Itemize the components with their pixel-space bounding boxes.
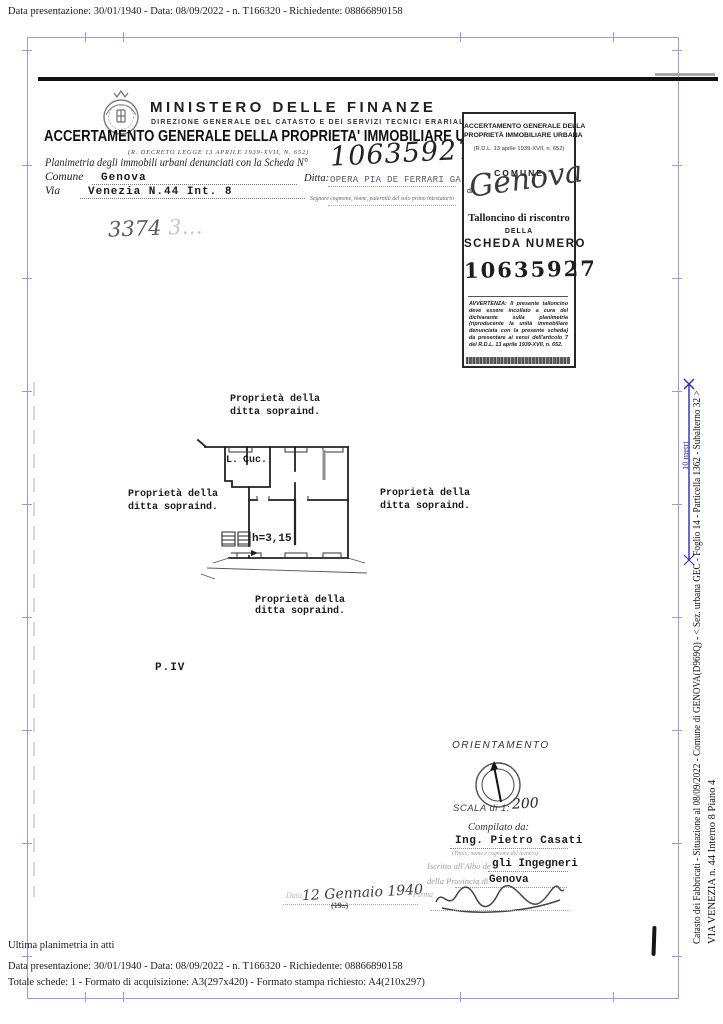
top-meta-line: Data presentazione: 30/01/1940 - Data: 0… <box>8 6 403 17</box>
frame-tick <box>672 391 682 392</box>
margin-address-line: VIA VENEZIA n. 44 Interno 8 Piano 4 <box>707 780 718 944</box>
via-value: Venezia N.44 Int. 8 <box>88 186 232 198</box>
compilato-name: Ing. Pietro Casati <box>455 835 583 847</box>
firma-underline <box>430 910 570 911</box>
decree-line: (R. DECRETO LEGGE 13 APRILE 1939-XVII, N… <box>128 149 309 156</box>
frame-tick <box>460 992 461 1002</box>
talloncino-title-2: PROPRIETÀ IMMOBILIARE URBANA <box>464 132 574 139</box>
frame-tick <box>22 50 32 51</box>
albo-underline <box>488 871 568 872</box>
frame-tick <box>22 504 32 505</box>
frame-tick <box>22 843 32 844</box>
frame-tick <box>22 730 32 731</box>
handwritten-reference-faint: 3… <box>168 214 203 239</box>
scan-top-rule-ghost <box>655 73 715 76</box>
date-label: Data <box>286 891 302 900</box>
frame-tick <box>672 956 682 957</box>
property-label-bottom: Proprietà della ditta sopraind. <box>255 596 345 617</box>
property-label-left-line1: Proprietà della <box>128 489 218 502</box>
property-label-top-line1: Proprietà della <box>230 393 320 406</box>
talloncino-scheda-numero: SCHEDA NUMERO <box>464 238 574 250</box>
ruler-label: 10 metri <box>680 441 690 470</box>
talloncino-title-1: ACCERTAMENTO GENERALE DELLA <box>464 123 574 130</box>
property-label-right: Proprietà della ditta sopraind. <box>380 488 470 513</box>
talloncino-riscontro: Talloncino di riscontro <box>464 213 574 224</box>
frame-tick <box>672 504 682 505</box>
frame-tick <box>22 617 32 618</box>
handwritten-reference-dark: 3374 <box>108 216 162 242</box>
frame-tick <box>672 50 682 51</box>
frame-tick <box>613 32 614 42</box>
frame-tick <box>123 992 124 1002</box>
compilato-name-note: (Titolo, nome e cognome del tecnico) <box>452 851 538 857</box>
signature-scribble <box>432 880 570 920</box>
talloncino-avvertenza: AVVERTENZA: Il presente talloncino deve … <box>469 301 568 348</box>
property-label-right-line2: ditta sopraind. <box>380 501 470 514</box>
frame-tick <box>85 992 86 1002</box>
talloncino-decree: (R.D.L. 13 aprile 1939-XVII, n. 652) <box>464 146 574 152</box>
scale-value-handwritten: 200 <box>512 795 540 812</box>
compilato-label: Compilato da: <box>468 822 529 833</box>
talloncino-divider <box>468 296 568 297</box>
property-label-top: Proprietà della ditta sopraind. <box>230 393 320 419</box>
ditta-underline <box>328 186 456 187</box>
talloncino-number-stamp: 10635927 <box>464 256 574 283</box>
frame-tick <box>123 32 124 42</box>
property-label-bottom-line1: Proprietà della <box>255 596 345 607</box>
firma-label: Firma <box>413 890 433 899</box>
comune-label: Comune <box>45 171 83 183</box>
bottom-meta-line-2: Totale schede: 1 - Formato di acquisizio… <box>8 977 425 988</box>
frame-tick <box>22 278 32 279</box>
room-label-cuc: Cuc. <box>243 455 267 466</box>
frame-tick <box>85 32 86 42</box>
height-note: h=3,15 <box>252 533 292 545</box>
frame-tick <box>460 32 461 42</box>
compilato-name-underline <box>450 848 568 849</box>
property-label-top-line2: ditta sopraind. <box>230 406 320 419</box>
status-line: Ultima planimetria in atti <box>8 940 114 951</box>
via-underline <box>80 198 305 199</box>
via-label: Via <box>45 185 60 197</box>
orientation-title: ORIENTAMENTO <box>452 740 550 751</box>
property-label-right-line1: Proprietà della <box>380 488 470 501</box>
property-label-bottom-line2: ditta sopraind. <box>255 607 345 618</box>
ministry-title: MINISTERO DELLE FINANZE <box>150 99 436 116</box>
frame-tick <box>672 617 682 618</box>
scale-label: SCALA di 1: <box>453 803 510 814</box>
talloncino-barcode-smudge <box>466 357 570 364</box>
comune-value: Genova <box>101 172 147 184</box>
floor-plan-drawing <box>193 434 373 586</box>
frame-tick <box>672 278 682 279</box>
floor-indicator: P.IV <box>155 662 185 674</box>
bottom-meta-line-1: Data presentazione: 30/01/1940 - Data: 0… <box>8 961 403 972</box>
ditta-footnote: Segnare cognome, nome, paternità del sol… <box>310 196 454 202</box>
date-underline <box>283 904 418 905</box>
margin-catasto-line: Catasto dei Fabbricati - Situazione al 0… <box>692 391 703 944</box>
frame-tick <box>613 992 614 1002</box>
property-label-left: Proprietà della ditta sopraind. <box>128 489 218 514</box>
albo-label: Iscritto all'Albo de <box>427 861 491 871</box>
frame-tick <box>672 730 682 731</box>
albo-value: gli Ingegneri <box>492 858 578 870</box>
frame-tick <box>22 391 32 392</box>
room-label-l: L. <box>226 455 238 466</box>
frame-tick <box>672 843 682 844</box>
talloncino-comune-handwritten: Genova <box>467 154 585 205</box>
frame-tick <box>22 956 32 957</box>
footnote-underline <box>328 205 456 206</box>
comune-underline <box>92 184 297 185</box>
talloncino-box: ACCERTAMENTO GENERALE DELLA PROPRIETÀ IM… <box>462 112 576 368</box>
direction-subtitle: DIREZIONE GENERALE DEL CATASTO E DEI SER… <box>151 119 468 126</box>
document-page: Data presentazione: 30/01/1940 - Data: 0… <box>0 0 723 1024</box>
handwritten-reference: 3374 3… <box>108 214 203 241</box>
frame-tick <box>672 165 682 166</box>
scan-paper-edge <box>33 382 35 897</box>
frame-tick <box>22 165 32 166</box>
scheda-label: Planimetria degli immobili urbani denunc… <box>45 157 308 169</box>
year-print-struck: (19..) <box>331 901 348 910</box>
ditta-label: Ditta: <box>304 173 329 184</box>
scan-top-rule <box>38 77 718 81</box>
property-label-left-line2: ditta sopraind. <box>128 502 218 515</box>
talloncino-della: DELLA <box>464 228 574 235</box>
